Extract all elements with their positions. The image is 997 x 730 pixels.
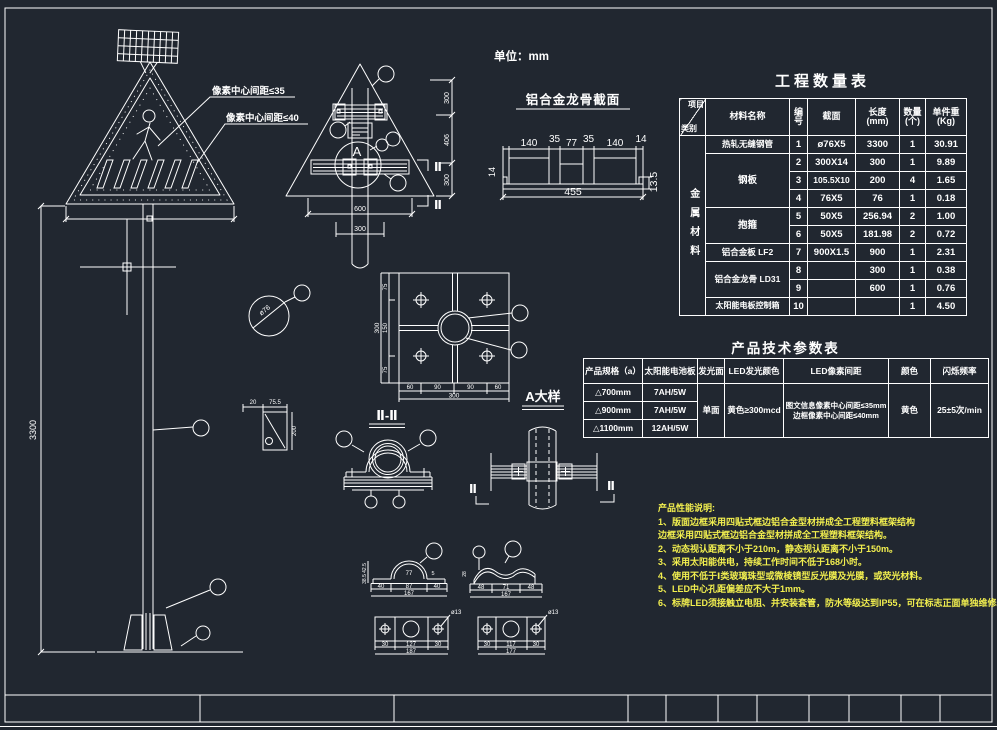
pipe-diameter-label: ø76 bbox=[258, 304, 272, 317]
solar-panel bbox=[117, 30, 179, 75]
pole-height-dim: 3300 bbox=[28, 420, 38, 440]
flange-dim-300l: 300 bbox=[374, 322, 381, 333]
gusset-plate-detail: 20 75.5 200 bbox=[243, 400, 298, 450]
col-material: 材料名称 bbox=[706, 99, 790, 136]
corner-top-label: 项目 bbox=[688, 101, 704, 109]
keel-dim-35b: 35 bbox=[583, 134, 595, 145]
cell-section: 76X5 bbox=[808, 190, 856, 208]
pitch-cell: 图文信息像素中心间距≤35mm 边框像素中心间距≤40mm bbox=[784, 384, 889, 438]
back-pole bbox=[352, 88, 368, 268]
back-bottom-dimensions: 600 300 bbox=[305, 198, 415, 237]
cell-no: 1 bbox=[790, 136, 808, 154]
col-qty: 数量 (个) bbox=[900, 99, 926, 136]
flange-dim-60a: 60 bbox=[407, 385, 414, 391]
pixel-pitch-40-label: 像素中心间距≤40 bbox=[225, 112, 299, 124]
cell-qty: 1 bbox=[900, 190, 926, 208]
cell-length: 900 bbox=[856, 244, 900, 262]
notes-title: 产品性能说明: bbox=[658, 502, 990, 516]
saddle-dim-40a: 40 bbox=[378, 584, 385, 590]
flange-bottom-dims: 60 90 90 60 300 bbox=[399, 383, 509, 402]
notes-line: 3、采用太阳能供电，持续工作时间不低于168小时。 bbox=[658, 556, 990, 570]
param-col-pitch: LED像素间距 bbox=[784, 359, 889, 384]
cell-section bbox=[808, 298, 856, 316]
keel-dim-140b: 140 bbox=[607, 138, 624, 149]
notes-line: 5、LED中心孔距偏差应不大于1mm。 bbox=[658, 583, 990, 597]
keel-dim-35a: 35 bbox=[549, 134, 561, 145]
gusset-dim-20: 20 bbox=[250, 400, 257, 406]
cell-weight: 1.00 bbox=[926, 208, 967, 226]
title-block-dividers bbox=[200, 695, 940, 722]
front-view: 像素中心间距≤35 像素中心间距≤40 3300 bbox=[28, 30, 308, 655]
saddle-height-38-5: 38.5 bbox=[362, 574, 368, 584]
material-cell: 铝合金龙骨 LD31 bbox=[706, 262, 790, 298]
cell-no: 6 bbox=[790, 226, 808, 244]
notes-line: 4、使用不低于Ⅰ类玻璃珠型或微棱镜型反光膜及光膜，或荧光材料。 bbox=[658, 570, 990, 584]
param-col-color: 颜色 bbox=[889, 359, 931, 384]
cell-weight: 0.38 bbox=[926, 262, 967, 280]
param-table: 产品规格（a） 太阳能电池板 发光面 LED发光颜色 LED像素间距 颜色 闪烁… bbox=[583, 358, 989, 438]
saddle-dim-5: 5 bbox=[431, 571, 434, 577]
keel-dim-77: 77 bbox=[566, 138, 578, 149]
cell-section: 105.5X10 bbox=[808, 172, 856, 190]
notes-line: 边框采用四贴式框边铝合金型材拼成全工程塑料框架结构。 bbox=[658, 529, 990, 543]
col-qty-2: (个) bbox=[905, 116, 920, 126]
flange-dim-300b: 300 bbox=[449, 393, 460, 400]
material-cell: 热轧无缝钢管 bbox=[706, 136, 790, 154]
detail-a-letter: A bbox=[353, 144, 362, 159]
unit-label: 单位：mm bbox=[494, 49, 549, 63]
pipe-section-detail: ø76 bbox=[249, 285, 310, 336]
cell-length: 3300 bbox=[856, 136, 900, 154]
cell-no: 7 bbox=[790, 244, 808, 262]
cell-qty: 1 bbox=[900, 136, 926, 154]
dim-600: 600 bbox=[354, 206, 366, 213]
col-section: 截面 bbox=[808, 99, 856, 136]
cad-crosshair-cursor bbox=[80, 219, 176, 315]
saddle-dim-87: 87 bbox=[406, 584, 413, 590]
cell-no: 10 bbox=[790, 298, 808, 316]
section-mark-bottom: Ⅱ bbox=[434, 198, 442, 212]
cell-weight: 30.91 bbox=[926, 136, 967, 154]
plate-b-dim-30a: 30 bbox=[484, 642, 491, 648]
cell-qty: 2 bbox=[900, 226, 926, 244]
corner-header: 项目 类别 bbox=[680, 99, 706, 136]
plate-a-dim-30a: 30 bbox=[382, 642, 389, 648]
keel-profile-title: 铝合金龙骨截面 bbox=[526, 92, 621, 107]
zebra-stripes bbox=[97, 160, 198, 188]
front-balloon-callouts bbox=[153, 420, 226, 646]
foundation bbox=[97, 615, 243, 652]
plate-a-dim-187: 187 bbox=[406, 649, 417, 655]
flange-dim-90b: 90 bbox=[467, 385, 474, 391]
notes-line: 2、动态视认距离不小于210m，静态视认距离不小于150m。 bbox=[658, 543, 990, 557]
material-cell: 铝合金板 LF2 bbox=[706, 244, 790, 262]
keel-dim-14-left: 14 bbox=[487, 167, 497, 177]
spec-cell: △1100mm bbox=[584, 420, 643, 438]
height-dimension: 3300 bbox=[28, 203, 95, 655]
cell-section: 50X5 bbox=[808, 226, 856, 244]
cell-no: 5 bbox=[790, 208, 808, 226]
cell-weight: 4.50 bbox=[926, 298, 967, 316]
cell-weight: 9.89 bbox=[926, 154, 967, 172]
cell-section: 300X14 bbox=[808, 154, 856, 172]
cell-qty: 1 bbox=[900, 244, 926, 262]
bolt-holes bbox=[413, 292, 495, 364]
corner-bottom-label: 类别 bbox=[681, 125, 697, 133]
section-labels: Ⅱ-Ⅱ A大样 bbox=[369, 389, 564, 428]
section-mark-right: Ⅱ bbox=[607, 479, 615, 493]
triangle-sign-back bbox=[286, 64, 434, 196]
spec-cell: △900mm bbox=[584, 402, 643, 420]
plate-detail-a: ø13 30 127 30 187 bbox=[375, 610, 462, 655]
front-width-dimension bbox=[63, 206, 237, 222]
material-cell: 抱箍 bbox=[706, 208, 790, 244]
cell-weight: 0.72 bbox=[926, 226, 967, 244]
cell-length: 76 bbox=[856, 190, 900, 208]
performance-notes: 产品性能说明: 1、版面边框采用四贴式框边铝合金型材拼成全工程塑料框架结构 边框… bbox=[658, 502, 990, 610]
plate-detail-b: ø13 30 117 30 177 bbox=[478, 610, 559, 655]
wave-dim-167: 167 bbox=[501, 592, 512, 598]
spec-cell: △700mm bbox=[584, 384, 643, 402]
material-cell: 钢板 bbox=[706, 154, 790, 208]
flange-dim-75a: 75 bbox=[383, 283, 389, 290]
bottom-keel bbox=[311, 159, 409, 175]
wave-dim-71: 71 bbox=[503, 585, 510, 591]
table-row: 太阳能电板控制箱 10 1 4.50 bbox=[680, 298, 967, 316]
led-dot-border-outer bbox=[73, 70, 227, 200]
keel-right-dim: 13.5 bbox=[643, 172, 660, 193]
battery-cell: 7AH/5W bbox=[643, 402, 698, 420]
param-col-spec: 产品规格（a） bbox=[584, 359, 643, 384]
cell-length: 256.94 bbox=[856, 208, 900, 226]
section-ii-ii-label: Ⅱ-Ⅱ bbox=[376, 408, 397, 423]
quantity-table-title: 工程数量表 bbox=[679, 70, 966, 91]
plate-a-dim-127: 127 bbox=[406, 642, 417, 648]
dim-right-mid: 406 bbox=[444, 134, 451, 146]
category-cell: 金属材料 bbox=[680, 136, 706, 316]
blink-cell: 25±5次/min bbox=[931, 384, 989, 438]
col-weight: 单件重 (Kg) bbox=[926, 99, 967, 136]
cell-length bbox=[856, 298, 900, 316]
cell-qty: 1 bbox=[900, 154, 926, 172]
detail-a-view: Ⅱ Ⅱ bbox=[469, 427, 615, 509]
keel-dim-14a: 14 bbox=[635, 134, 647, 145]
battery-cell: 7AH/5W bbox=[643, 384, 698, 402]
flange-dim-150: 150 bbox=[383, 322, 389, 333]
notes-line: 6、标牌LED须接触立电阻、并安装套管，防水等级达到IP55，可在标志正面单独维… bbox=[658, 597, 990, 611]
led-color-cell: 黄色≥300mcd bbox=[725, 384, 784, 438]
plate-b-dim-117: 117 bbox=[506, 642, 516, 648]
gusset-dim-75-5: 75.5 bbox=[269, 400, 281, 406]
col-length: 长度 (mm) bbox=[856, 99, 900, 136]
cell-qty: 1 bbox=[900, 280, 926, 298]
battery-cell: 12AH/5W bbox=[643, 420, 698, 438]
cell-section: ø76X5 bbox=[808, 136, 856, 154]
cell-length: 200 bbox=[856, 172, 900, 190]
param-col-blink: 闪烁频率 bbox=[931, 359, 989, 384]
saddle-dim-167: 167 bbox=[404, 591, 415, 597]
wave-clamp-detail: 48 71 48 167 28 bbox=[462, 541, 542, 598]
saddle-height-42-5: 42.5 bbox=[362, 563, 368, 573]
cell-length: 600 bbox=[856, 280, 900, 298]
cell-no: 9 bbox=[790, 280, 808, 298]
plate-a-dim-30b: 30 bbox=[435, 642, 442, 648]
cell-weight: 1.65 bbox=[926, 172, 967, 190]
col-weight-2: (Kg) bbox=[937, 116, 955, 126]
wave-dim-48a: 48 bbox=[478, 585, 485, 591]
col-length-2: (mm) bbox=[867, 116, 889, 126]
flange-dim-90a: 90 bbox=[434, 385, 441, 391]
cell-length: 300 bbox=[856, 154, 900, 172]
flange-dim-75b: 75 bbox=[383, 366, 389, 373]
cell-qty: 1 bbox=[900, 298, 926, 316]
plate-a-hole-label: ø13 bbox=[451, 610, 462, 616]
param-table-title: 产品技术参数表 bbox=[583, 337, 988, 357]
material-cell: 太阳能电板控制箱 bbox=[706, 298, 790, 316]
param-col-battery: 太阳能电池板 bbox=[643, 359, 698, 384]
saddle-clamp-detail: 77 5 40 87 40 167 42.5 38.5 bbox=[362, 543, 447, 597]
wave-dim-48b: 48 bbox=[528, 585, 535, 591]
cell-weight: 0.18 bbox=[926, 190, 967, 208]
cell-no: 4 bbox=[790, 190, 808, 208]
pitch-line-1: 图文信息像素中心间距≤35mm bbox=[784, 401, 888, 411]
section-mark-top: Ⅱ bbox=[434, 160, 442, 174]
cell-qty: 1 bbox=[900, 262, 926, 280]
pitch-line-2: 边框像素中心间距≤40mm bbox=[784, 411, 888, 421]
color-cell: 黄色 bbox=[889, 384, 931, 438]
table-row: 金属材料 热轧无缝钢管 1 ø76X5 3300 1 30.91 bbox=[680, 136, 967, 154]
keel-profile-section: 铝合金龙骨截面 140 35 77 35 140 14 14 455 13.5 bbox=[487, 92, 660, 200]
section-mark-left: Ⅱ bbox=[469, 482, 477, 496]
cell-section bbox=[808, 262, 856, 280]
sign-pole bbox=[143, 204, 153, 650]
detail-a-title: A大样 bbox=[525, 389, 560, 404]
back-right-dimensions: 300 406 300 bbox=[430, 77, 455, 199]
section-ii-ii-detail bbox=[336, 430, 436, 508]
keel-dim-13-5: 13.5 bbox=[648, 172, 660, 193]
col-no: 编号 bbox=[790, 99, 808, 136]
flange-plate-detail: 60 90 90 60 300 75 150 75 300 bbox=[374, 273, 528, 402]
cell-section: 900X1.5 bbox=[808, 244, 856, 262]
cell-qty: 4 bbox=[900, 172, 926, 190]
param-col-ledcolor: LED发光颜色 bbox=[725, 359, 784, 384]
dim-right-top: 300 bbox=[444, 92, 451, 104]
keel-dim-140a: 140 bbox=[521, 138, 538, 149]
pixel-pitch-leaders: 像素中心间距≤35 像素中心间距≤40 bbox=[158, 85, 308, 163]
dim-right-bot: 300 bbox=[444, 174, 451, 186]
plate-b-dim-177: 177 bbox=[506, 649, 517, 655]
plate-b-dim-30b: 30 bbox=[533, 642, 540, 648]
cell-section: 50X5 bbox=[808, 208, 856, 226]
cell-length: 300 bbox=[856, 262, 900, 280]
table-row: △700mm 7AH/5W 单面 黄色≥300mcd 图文信息像素中心间距≤35… bbox=[584, 384, 989, 402]
table-row: 抱箍 5 50X5 256.94 2 1.00 bbox=[680, 208, 967, 226]
plate-b-hole-label: ø13 bbox=[548, 610, 559, 616]
cell-no: 2 bbox=[790, 154, 808, 172]
dim-300: 300 bbox=[354, 226, 366, 233]
keel-dim-455: 455 bbox=[564, 186, 582, 198]
pixel-pitch-35-label: 像素中心间距≤35 bbox=[211, 85, 285, 97]
back-view: A Ⅱ Ⅱ 300 406 300 600 bbox=[286, 64, 455, 268]
cell-no: 3 bbox=[790, 172, 808, 190]
cell-length: 181.98 bbox=[856, 226, 900, 244]
saddle-dim-77: 77 bbox=[406, 571, 413, 577]
saddle-dim-40b: 40 bbox=[434, 584, 441, 590]
table-row: 铝合金龙骨 LD31 8 300 1 0.38 bbox=[680, 262, 967, 280]
section-ii-markers-back: Ⅱ Ⅱ bbox=[417, 160, 442, 212]
keel-top-dims: 140 35 77 35 140 14 bbox=[503, 134, 647, 177]
pedestrian-figure bbox=[133, 110, 160, 160]
cad-drawing-sheet: 像素中心间距≤35 像素中心间距≤40 3300 bbox=[0, 0, 997, 730]
quantity-table: 项目 类别 材料名称 编号 截面 长度 (mm) 数量 (个) 单件重 (Kg)… bbox=[679, 98, 967, 316]
cell-section bbox=[808, 280, 856, 298]
gusset-dim-200: 200 bbox=[292, 425, 298, 436]
table-row: 钢板 2 300X14 300 1 9.89 bbox=[680, 154, 967, 172]
flange-dim-60b: 60 bbox=[495, 385, 502, 391]
face-cell: 单面 bbox=[698, 384, 725, 438]
cell-weight: 2.31 bbox=[926, 244, 967, 262]
param-col-face: 发光面 bbox=[698, 359, 725, 384]
table-row: 铝合金板 LF2 7 900X1.5 900 1 2.31 bbox=[680, 244, 967, 262]
notes-line: 1、版面边框采用四贴式框边铝合金型材拼成全工程塑料框架结构 bbox=[658, 516, 990, 530]
flange-left-dims: 75 150 75 300 bbox=[374, 273, 399, 383]
cell-qty: 2 bbox=[900, 208, 926, 226]
cell-weight: 0.76 bbox=[926, 280, 967, 298]
keel-bottom-dim: 455 bbox=[500, 186, 646, 200]
cell-no: 8 bbox=[790, 262, 808, 280]
wave-height-28: 28 bbox=[462, 571, 468, 577]
top-keel bbox=[333, 104, 387, 120]
